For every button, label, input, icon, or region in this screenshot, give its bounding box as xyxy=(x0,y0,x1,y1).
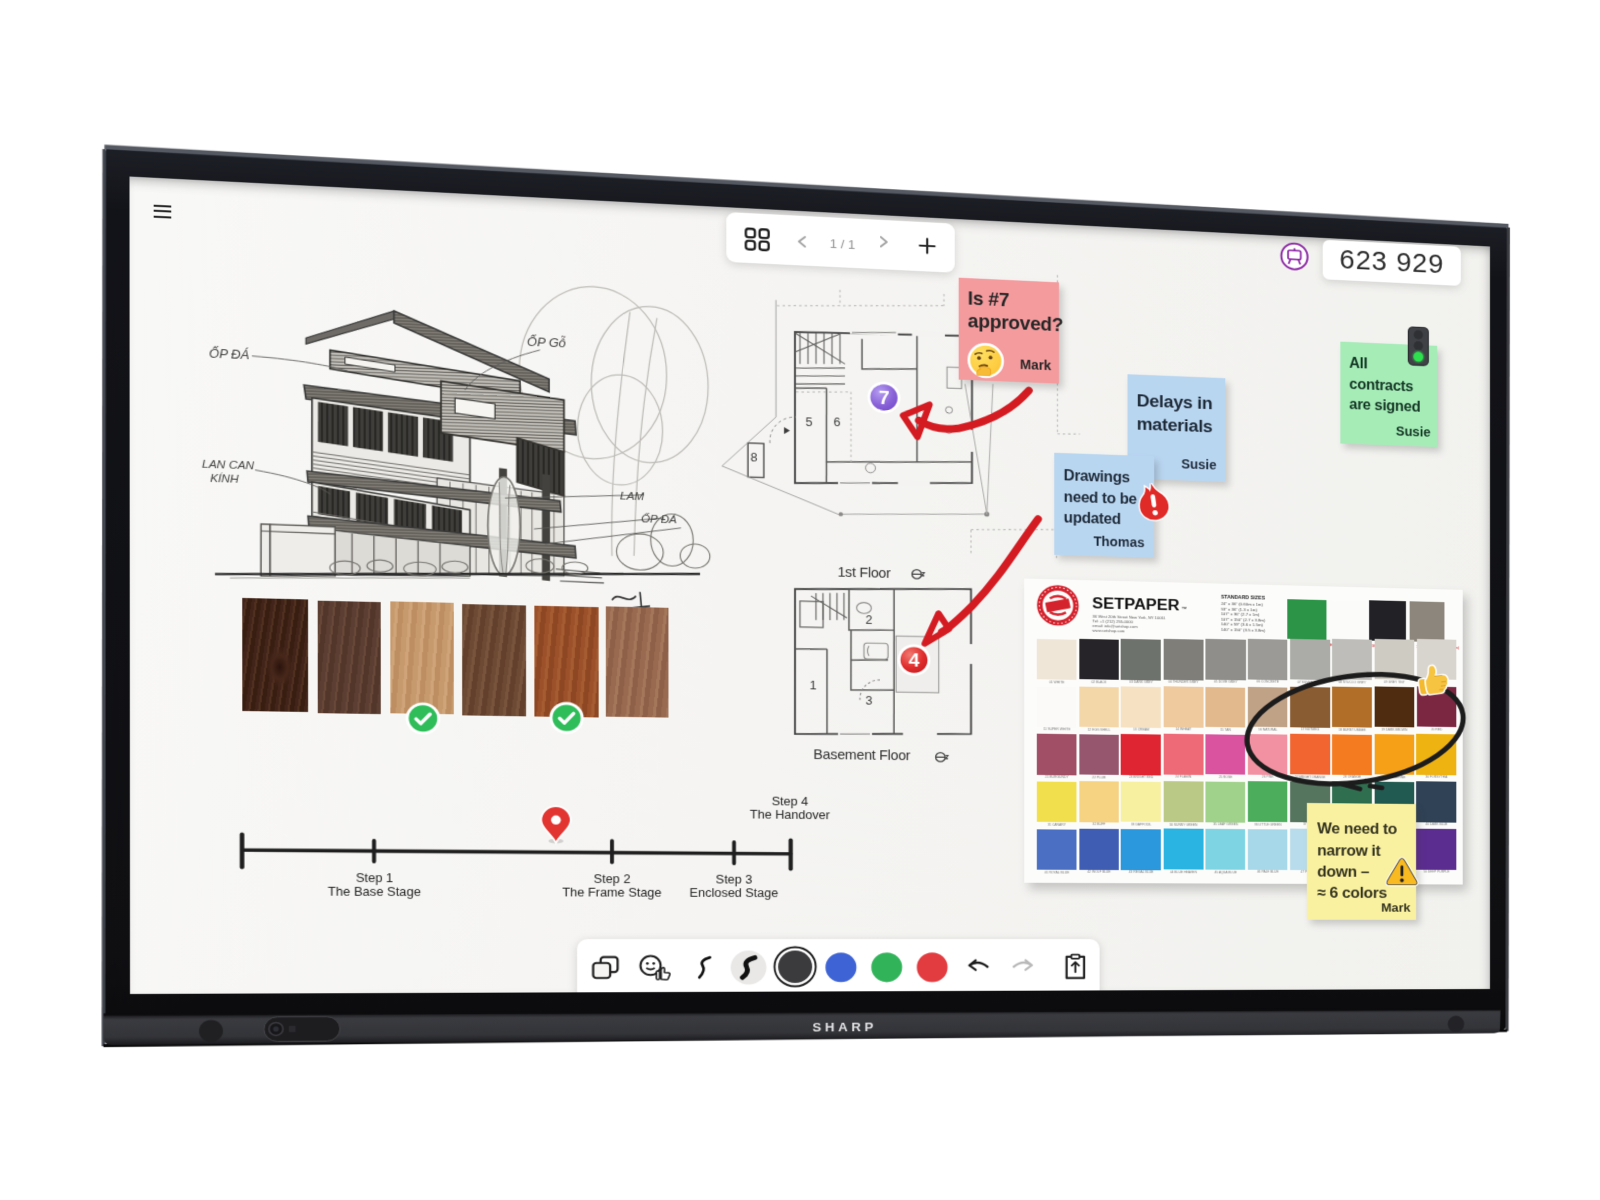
svg-text:7: 7 xyxy=(878,388,889,409)
svg-text:4: 4 xyxy=(908,649,919,671)
